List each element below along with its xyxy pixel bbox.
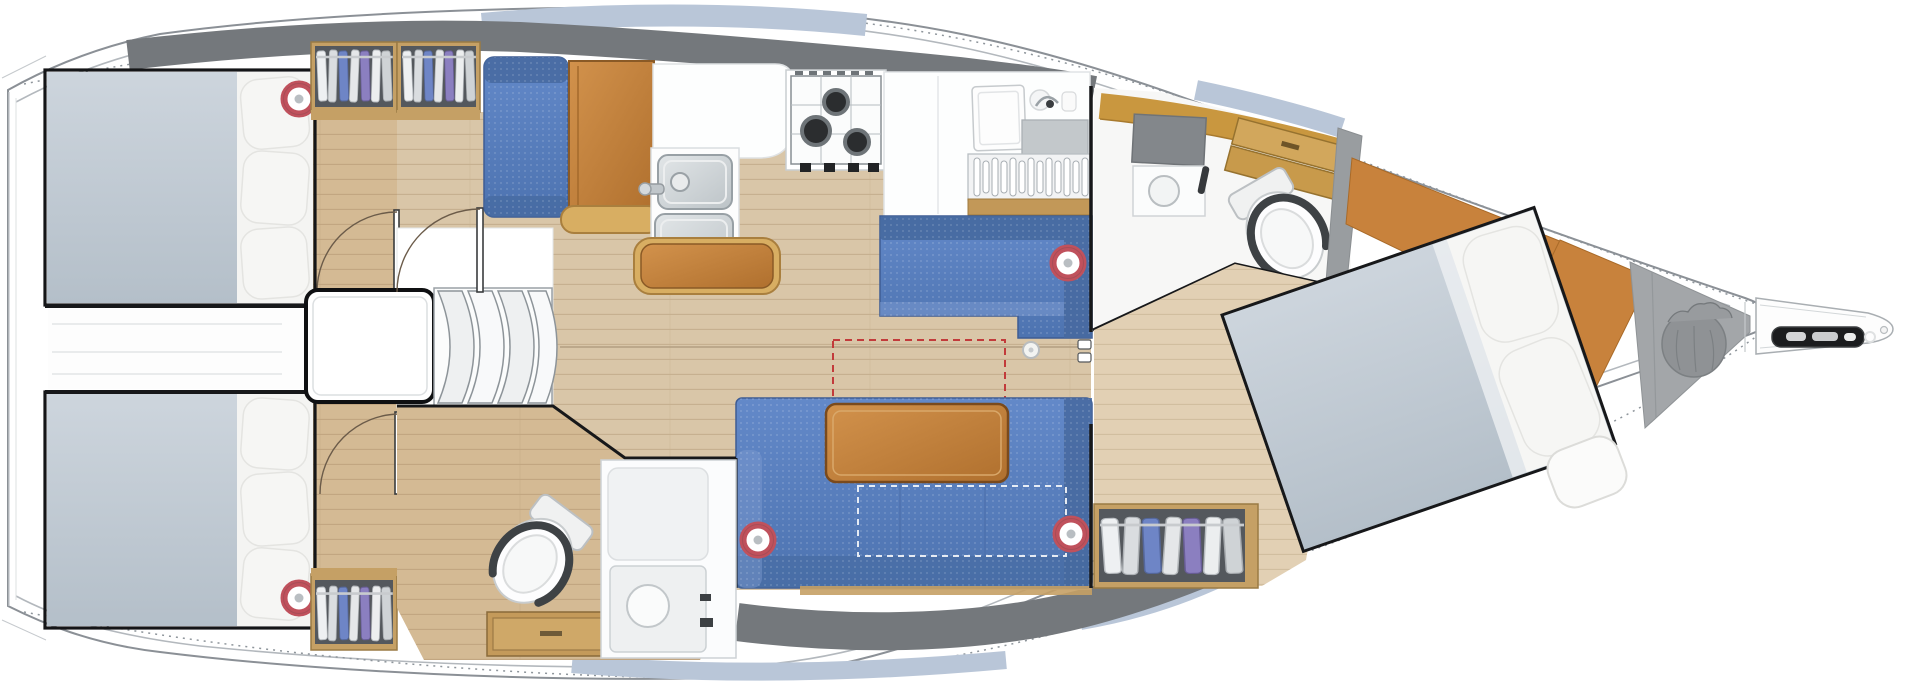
bow-bolt xyxy=(1881,327,1888,334)
bow-locker xyxy=(1630,262,1893,428)
stove-foot xyxy=(800,163,811,172)
aft-head-vanity xyxy=(487,612,613,656)
salon-table xyxy=(826,404,1008,482)
shower-pan xyxy=(608,468,708,560)
yacht-floor-plan xyxy=(0,0,1920,697)
companionway-steps xyxy=(434,288,557,406)
burner xyxy=(802,117,830,145)
pillow xyxy=(240,471,311,547)
passage-floor xyxy=(48,309,304,389)
speaker-icon xyxy=(743,525,774,556)
floor-plan-canvas xyxy=(0,0,1920,697)
wardrobe-trim xyxy=(311,568,397,576)
aft-cabin-port xyxy=(45,42,399,305)
nav-seat xyxy=(484,57,568,217)
aft-cabin-starboard xyxy=(45,392,400,650)
nav-table xyxy=(561,61,661,233)
nav-table-trim xyxy=(561,206,661,233)
roller-slot xyxy=(1786,332,1806,341)
wardrobe-trim xyxy=(311,110,397,120)
burner xyxy=(824,90,848,114)
aft-cabin-stbd-mattress xyxy=(47,394,237,626)
wardrobe-trim xyxy=(397,110,480,120)
faucet-icon xyxy=(700,594,711,601)
aft-cabin-port-wardrobe xyxy=(311,42,397,120)
sofa-base-trim xyxy=(800,586,1092,595)
galley-bench xyxy=(634,238,780,294)
speaker-icon xyxy=(1053,248,1084,279)
dish-rack xyxy=(968,154,1090,200)
companionway-door-top xyxy=(477,208,483,292)
stove-foot xyxy=(824,163,835,172)
speaker-icon xyxy=(284,84,315,115)
door-handle xyxy=(1078,340,1091,349)
shower-sink-bowl xyxy=(627,585,669,627)
pillow xyxy=(240,226,311,300)
speaker-icon xyxy=(284,583,315,614)
burner xyxy=(845,130,869,154)
stove-foot xyxy=(868,163,879,172)
bowsprit xyxy=(1756,298,1893,354)
faucet-icon xyxy=(700,618,713,627)
pillow xyxy=(240,397,311,471)
fwd-cabin-wardrobe xyxy=(1094,504,1258,588)
engine-box xyxy=(306,290,434,402)
aft-head-shower xyxy=(601,460,736,658)
aft-cabin-port-floor xyxy=(313,120,397,302)
sink-drain xyxy=(671,173,689,191)
speaker-icon xyxy=(1056,519,1087,550)
soap-bottle xyxy=(1062,92,1076,111)
sink-small xyxy=(658,155,732,209)
stove xyxy=(786,70,886,172)
aft-cabin-stbd-floor xyxy=(313,396,397,572)
galley-counter xyxy=(653,64,793,158)
stove-foot xyxy=(848,163,859,172)
galley-wardrobe xyxy=(397,42,480,120)
vanity-sink-bowl xyxy=(1149,176,1179,206)
door-handle xyxy=(1078,353,1091,362)
roller-slot xyxy=(1844,333,1856,341)
roller-slot xyxy=(1812,332,1838,341)
drawer-handle xyxy=(540,631,562,636)
pillow xyxy=(240,150,311,226)
aft-cabin-stbd-wardrobe xyxy=(311,568,397,650)
fwd-head-shower-pan xyxy=(1132,114,1206,166)
galley-wood-shelf xyxy=(968,199,1090,215)
aft-cabin-port-mattress xyxy=(47,72,237,303)
